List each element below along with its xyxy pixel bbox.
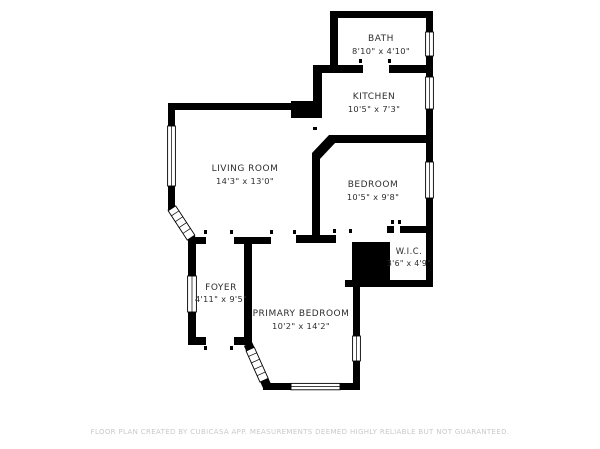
wic-label: W.I.C.	[396, 246, 423, 256]
primary-bedroom-bay-window	[246, 347, 268, 382]
kitchen-window	[426, 77, 434, 109]
bath-dims: 8'10" x 4'10"	[352, 46, 410, 56]
foyer-door-mark	[230, 230, 233, 234]
primary-door-mark	[293, 230, 296, 234]
bath-door-mark	[388, 59, 391, 63]
entry-door-mark	[230, 346, 233, 350]
kitchen-label: KITCHEN	[353, 92, 396, 102]
primary-bedroom-label: PRIMARY BEDROOM	[253, 309, 350, 319]
bath-window	[426, 32, 434, 56]
disclaimer-text: FLOOR PLAN CREATED BY CUBICASA APP. MEAS…	[91, 428, 510, 436]
bath-label: BATH	[368, 34, 394, 44]
wic-door-mark	[398, 220, 401, 224]
wall-bath-bottom-right	[389, 65, 433, 73]
wall-foyer-divider	[244, 237, 252, 345]
bedroom-door-mark	[333, 229, 336, 233]
wall-shaft-block	[352, 242, 390, 283]
windows	[168, 32, 434, 390]
living-room-label: LIVING ROOM	[212, 164, 279, 174]
bedroom-dims: 10'5" x 9'8"	[347, 192, 399, 202]
living-room-bay-window	[168, 206, 195, 240]
bedroom-window	[426, 162, 434, 198]
wall-bath-left	[330, 11, 338, 68]
wall-wic-top-left	[387, 226, 394, 233]
living-room-window	[168, 126, 176, 186]
wall-bedroom-left	[312, 153, 320, 235]
foyer-label: FOYER	[205, 283, 237, 293]
entry-door-mark	[204, 346, 207, 350]
wall-kitchen-bottom	[329, 135, 426, 143]
wic-dims: 3'6" x 4'9"	[387, 259, 431, 268]
living-room-dims: 14'3" x 13'0"	[216, 176, 274, 186]
wall-bedroom-bottom	[296, 235, 336, 243]
floor-plan-page: BATH 8'10" x 4'10" KITCHEN 10'5" x 7'3" …	[0, 0, 600, 449]
kitchen-dims: 10'5" x 7'3"	[348, 104, 400, 114]
primary-bedroom-bottom-window	[291, 383, 340, 389]
wall-primary-right-upper	[353, 287, 360, 336]
primary-bedroom-right-window	[353, 336, 361, 361]
bath-door-mark	[359, 59, 362, 63]
wic-door-mark	[391, 220, 394, 224]
wall-foyer-bottom-left	[188, 337, 206, 345]
wall-column-kitchen	[291, 101, 322, 118]
kitchen-door-mark	[313, 127, 317, 130]
foyer-door-mark	[204, 230, 207, 234]
bedroom-door-mark	[349, 229, 352, 233]
primary-bedroom-dims: 10'2" x 14'2"	[272, 321, 330, 331]
bedroom-label: BEDROOM	[348, 180, 398, 190]
wall-living-top	[168, 103, 292, 110]
wall-foyer-bottom-right	[234, 337, 245, 345]
wall-bath-top	[330, 11, 433, 18]
primary-door-mark	[270, 230, 273, 234]
wall-wic-top-right	[400, 226, 426, 233]
wall-foyer-top-right	[234, 237, 271, 244]
wall-primary-right-lower	[353, 361, 360, 390]
floor-plan-canvas: BATH 8'10" x 4'10" KITCHEN 10'5" x 7'3" …	[0, 0, 600, 449]
wall-wic-bottom	[345, 280, 433, 287]
foyer-dims: 4'11" x 9'5"	[195, 294, 247, 304]
